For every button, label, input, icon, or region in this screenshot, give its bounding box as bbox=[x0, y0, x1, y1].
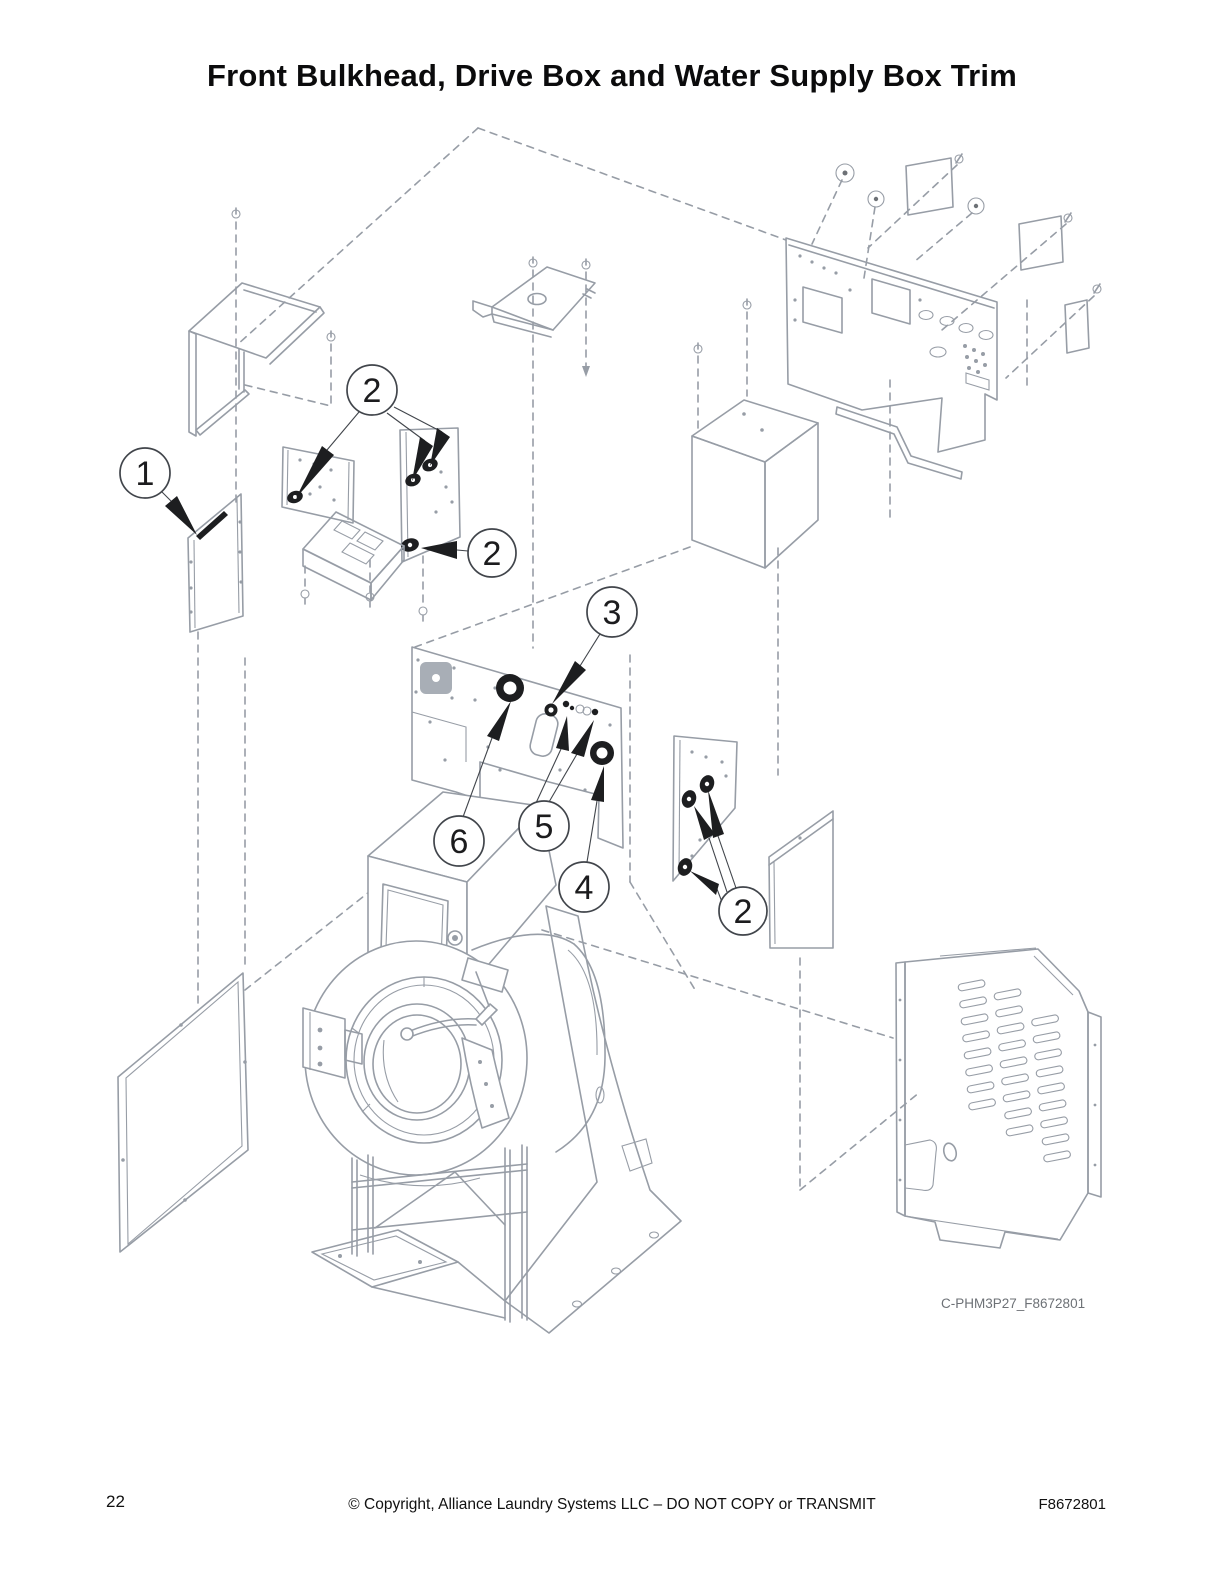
manual-page: Front Bulkhead, Drive Box and Water Supp… bbox=[0, 0, 1224, 1584]
bottom-left-panel bbox=[118, 973, 248, 1252]
support-bracket bbox=[836, 407, 962, 479]
callout-3-number: 3 bbox=[603, 594, 622, 632]
screw bbox=[1064, 213, 1072, 222]
washer-front-assembly bbox=[303, 792, 681, 1333]
screw bbox=[419, 607, 427, 621]
side-trim-panel bbox=[188, 494, 243, 632]
screw bbox=[955, 154, 963, 163]
screw bbox=[327, 331, 335, 341]
figure-code-label: C-PHM3P27_F8672801 bbox=[941, 1296, 1085, 1311]
vent-louvers bbox=[958, 979, 1071, 1162]
right-side-panel bbox=[769, 811, 833, 948]
bulkhead-grommets bbox=[496, 674, 614, 765]
water-supply-rear-panel bbox=[786, 238, 997, 452]
callout-3: 3 bbox=[552, 587, 637, 704]
callout-1: 1 bbox=[120, 448, 197, 535]
screw bbox=[743, 299, 751, 309]
screw bbox=[232, 208, 240, 218]
callout-1-number: 1 bbox=[136, 455, 155, 493]
callout-4-number: 4 bbox=[575, 869, 594, 907]
callout-2-number: 2 bbox=[734, 893, 753, 931]
door-glass bbox=[373, 1015, 461, 1113]
right-trim-panel bbox=[673, 736, 737, 881]
callout-2-number: 2 bbox=[483, 535, 502, 573]
screw bbox=[529, 257, 537, 267]
screw bbox=[694, 343, 702, 353]
vented-rear-panel bbox=[896, 948, 1101, 1248]
callout-2-number: 2 bbox=[363, 372, 382, 410]
screw bbox=[1093, 284, 1101, 293]
support-frame-right bbox=[505, 906, 681, 1333]
drive-box bbox=[692, 400, 818, 568]
callout-2-right: 2 bbox=[690, 790, 767, 935]
top-left-trim-panel bbox=[189, 283, 324, 436]
grommet-rings bbox=[836, 164, 984, 214]
trim-strip-part-1 bbox=[196, 511, 228, 540]
callout-2-top: 2 bbox=[296, 365, 450, 498]
top-mounting-bracket bbox=[473, 267, 595, 337]
screw bbox=[582, 259, 590, 269]
screw bbox=[301, 590, 309, 604]
water-supply-box bbox=[303, 512, 404, 600]
callout-6-number: 6 bbox=[450, 823, 469, 861]
callout-5-number: 5 bbox=[535, 808, 554, 846]
guide-arrow bbox=[582, 366, 590, 377]
document-number: F8672801 bbox=[1038, 1496, 1106, 1513]
callout-2-supply-box: 2 bbox=[421, 529, 516, 577]
exploded-parts-diagram: 1 2 2 3 4 bbox=[0, 0, 1224, 1584]
